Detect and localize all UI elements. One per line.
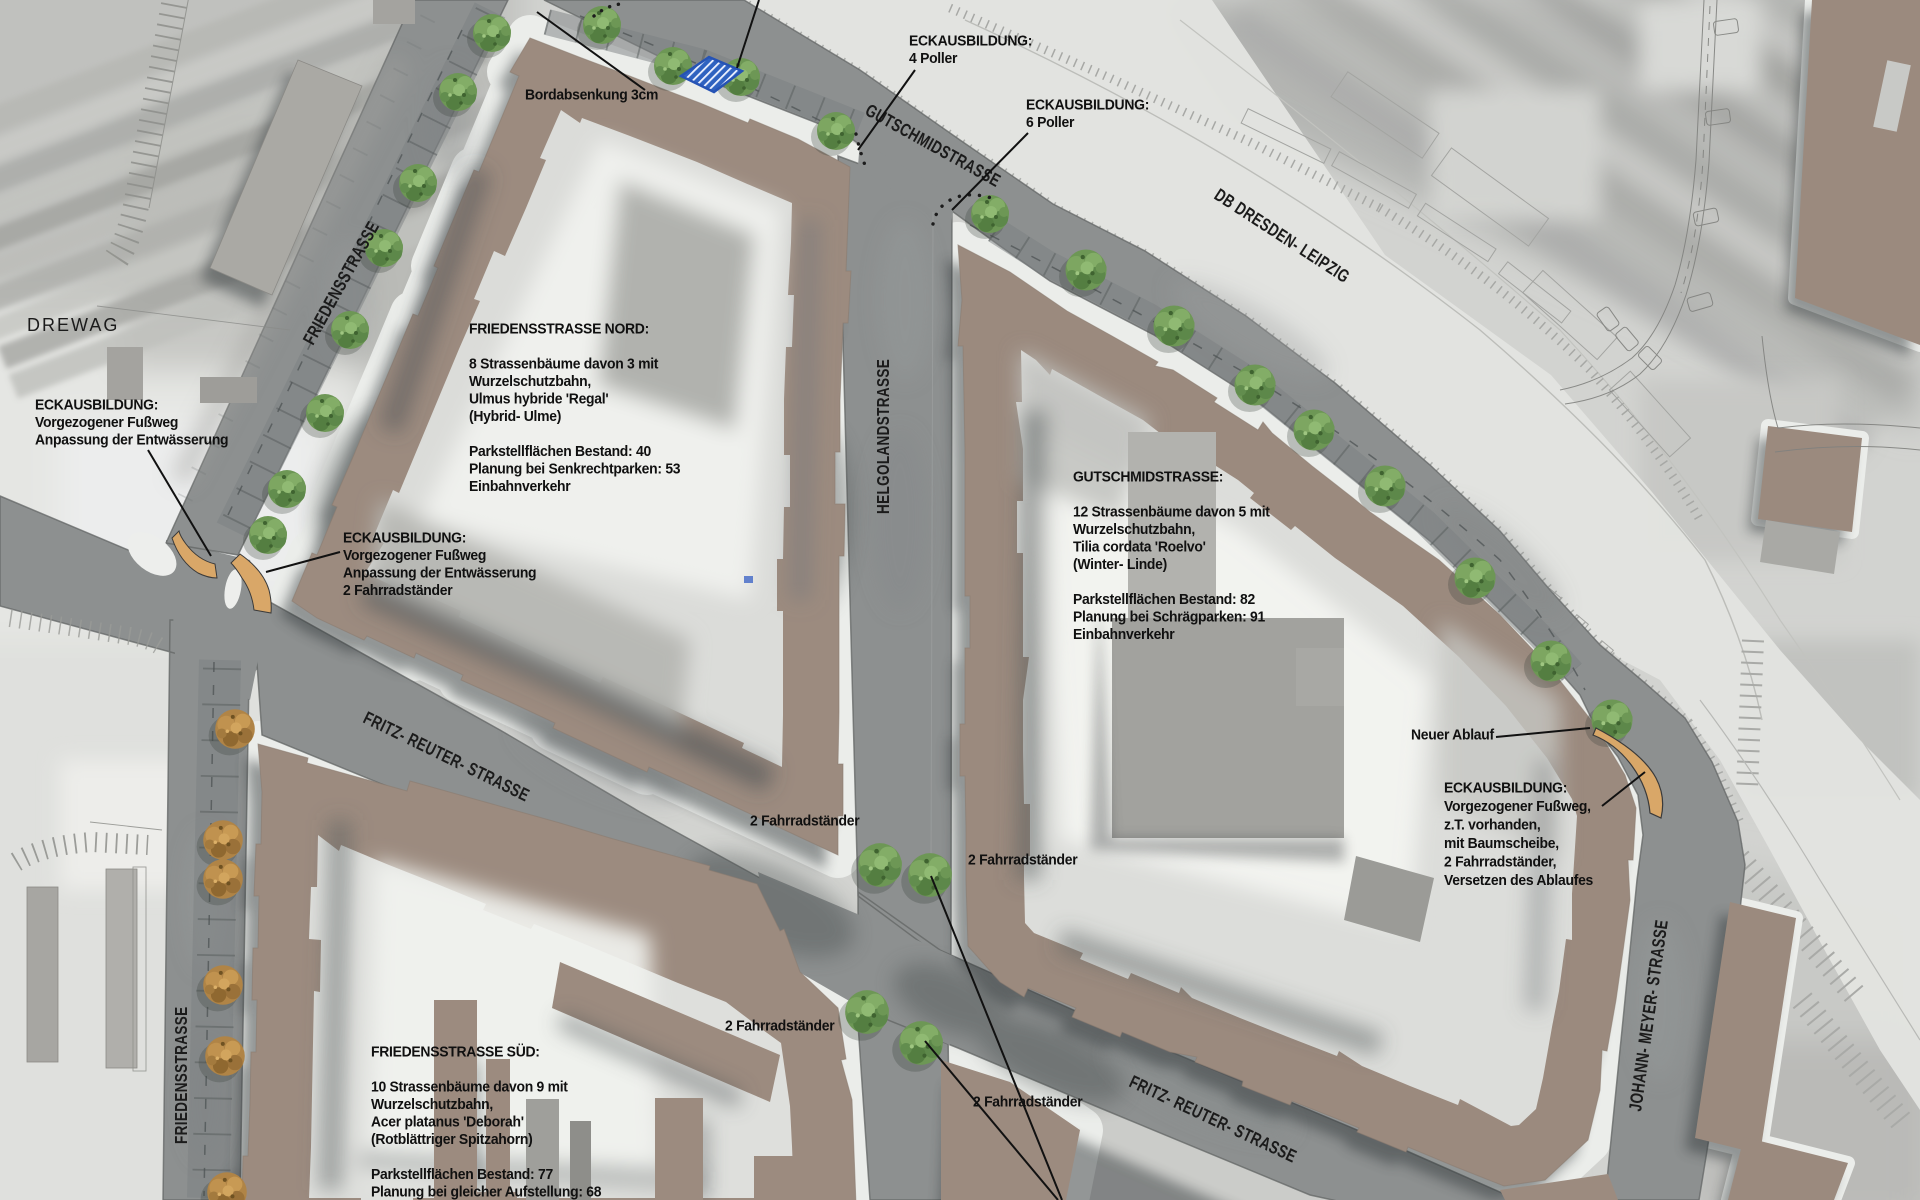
svg-text:ECKAUSBILDUNG:: ECKAUSBILDUNG: bbox=[343, 530, 466, 547]
svg-text:Planung bei Senkrechtparken: 5: Planung bei Senkrechtparken: 53 bbox=[469, 461, 681, 478]
svg-text:2 Fahrradständer,: 2 Fahrradständer, bbox=[1444, 854, 1556, 871]
svg-text:12 Strassenbäume davon 5 mit: 12 Strassenbäume davon 5 mit bbox=[1073, 504, 1270, 521]
svg-text:Planung bei Schrägparken: 91: Planung bei Schrägparken: 91 bbox=[1073, 609, 1265, 626]
svg-text:ECKAUSBILDUNG:: ECKAUSBILDUNG: bbox=[35, 397, 158, 414]
svg-text:Versetzen des Ablaufes: Versetzen des Ablaufes bbox=[1444, 872, 1593, 889]
svg-text:Parkstellflächen Bestand: 77: Parkstellflächen Bestand: 77 bbox=[371, 1166, 553, 1183]
svg-text:Ulmus hybride 'Regal': Ulmus hybride 'Regal' bbox=[469, 391, 608, 408]
svg-text:2 Fahrradständer: 2 Fahrradständer bbox=[968, 852, 1078, 869]
svg-text:Wurzelschutzbahn,: Wurzelschutzbahn, bbox=[371, 1096, 493, 1113]
svg-text:Vorgezogener Fußweg,: Vorgezogener Fußweg, bbox=[1444, 798, 1591, 815]
svg-text:Bordabsenkung 3cm: Bordabsenkung 3cm bbox=[525, 87, 658, 104]
svg-text:ECKAUSBILDUNG:: ECKAUSBILDUNG: bbox=[1444, 780, 1567, 797]
svg-text:Tilia cordata 'Roelvo': Tilia cordata 'Roelvo' bbox=[1073, 539, 1206, 556]
svg-text:ECKAUSBILDUNG:: ECKAUSBILDUNG: bbox=[1026, 97, 1149, 114]
svg-text:mit Baumscheibe,: mit Baumscheibe, bbox=[1444, 835, 1559, 852]
svg-text:FRIEDENSSTRASSE NORD:: FRIEDENSSTRASSE NORD: bbox=[469, 321, 649, 338]
svg-text:Parkstellflächen Bestand: 40: Parkstellflächen Bestand: 40 bbox=[469, 443, 651, 460]
svg-text:10 Strassenbäume davon 9 mit: 10 Strassenbäume davon 9 mit bbox=[371, 1079, 568, 1096]
svg-text:DREWAG: DREWAG bbox=[27, 315, 119, 335]
svg-text:HELGOLANDSTRASSE: HELGOLANDSTRASSE bbox=[874, 359, 893, 514]
svg-text:Vorgezogener Fußweg: Vorgezogener Fußweg bbox=[35, 414, 178, 431]
svg-text:(Rotblättriger Spitzahorn): (Rotblättriger Spitzahorn) bbox=[371, 1131, 533, 1148]
svg-text:ECKAUSBILDUNG:: ECKAUSBILDUNG: bbox=[909, 33, 1032, 50]
svg-text:Acer platanus 'Deborah': Acer platanus 'Deborah' bbox=[371, 1114, 524, 1131]
svg-text:GUTSCHMIDSTRASSE:: GUTSCHMIDSTRASSE: bbox=[1073, 469, 1223, 486]
svg-text:(Hybrid- Ulme): (Hybrid- Ulme) bbox=[469, 408, 562, 425]
svg-text:Wurzelschutzbahn,: Wurzelschutzbahn, bbox=[469, 373, 591, 390]
svg-text:Einbahnverkehr: Einbahnverkehr bbox=[1073, 626, 1175, 643]
svg-text:Einbahnverkehr: Einbahnverkehr bbox=[469, 478, 571, 495]
svg-text:FRIEDENSSTRASSE SÜD:: FRIEDENSSTRASSE SÜD: bbox=[371, 1043, 540, 1061]
svg-text:4 Poller: 4 Poller bbox=[909, 50, 958, 67]
svg-text:8 Strassenbäume davon 3 mit: 8 Strassenbäume davon 3 mit bbox=[469, 356, 659, 373]
svg-text:6 Poller: 6 Poller bbox=[1026, 114, 1075, 131]
svg-text:Anpassung der Entwässerung: Anpassung der Entwässerung bbox=[35, 432, 228, 449]
svg-text:2 Fahrradständer: 2 Fahrradständer bbox=[973, 1094, 1083, 1111]
svg-text:Wurzelschutzbahn,: Wurzelschutzbahn, bbox=[1073, 521, 1195, 538]
svg-text:2 Fahrradständer: 2 Fahrradständer bbox=[725, 1018, 835, 1035]
svg-text:Planung bei gleicher Aufstellu: Planung bei gleicher Aufstellung: 68 bbox=[371, 1184, 601, 1200]
svg-text:Parkstellflächen Bestand: 82: Parkstellflächen Bestand: 82 bbox=[1073, 591, 1255, 608]
svg-text:2 Fahrradständer: 2 Fahrradständer bbox=[343, 582, 453, 599]
svg-text:z.T. vorhanden,: z.T. vorhanden, bbox=[1444, 817, 1541, 834]
svg-text:Anpassung der Entwässerung: Anpassung der Entwässerung bbox=[343, 565, 536, 582]
svg-text:FRIEDENSSTRASSE: FRIEDENSSTRASSE bbox=[172, 1007, 191, 1144]
svg-text:Neuer Ablauf: Neuer Ablauf bbox=[1411, 727, 1494, 744]
svg-text:Vorgezogener Fußweg: Vorgezogener Fußweg bbox=[343, 547, 486, 564]
svg-text:(Winter- Linde): (Winter- Linde) bbox=[1073, 556, 1167, 573]
svg-text:2 Fahrradständer: 2 Fahrradständer bbox=[750, 813, 860, 830]
